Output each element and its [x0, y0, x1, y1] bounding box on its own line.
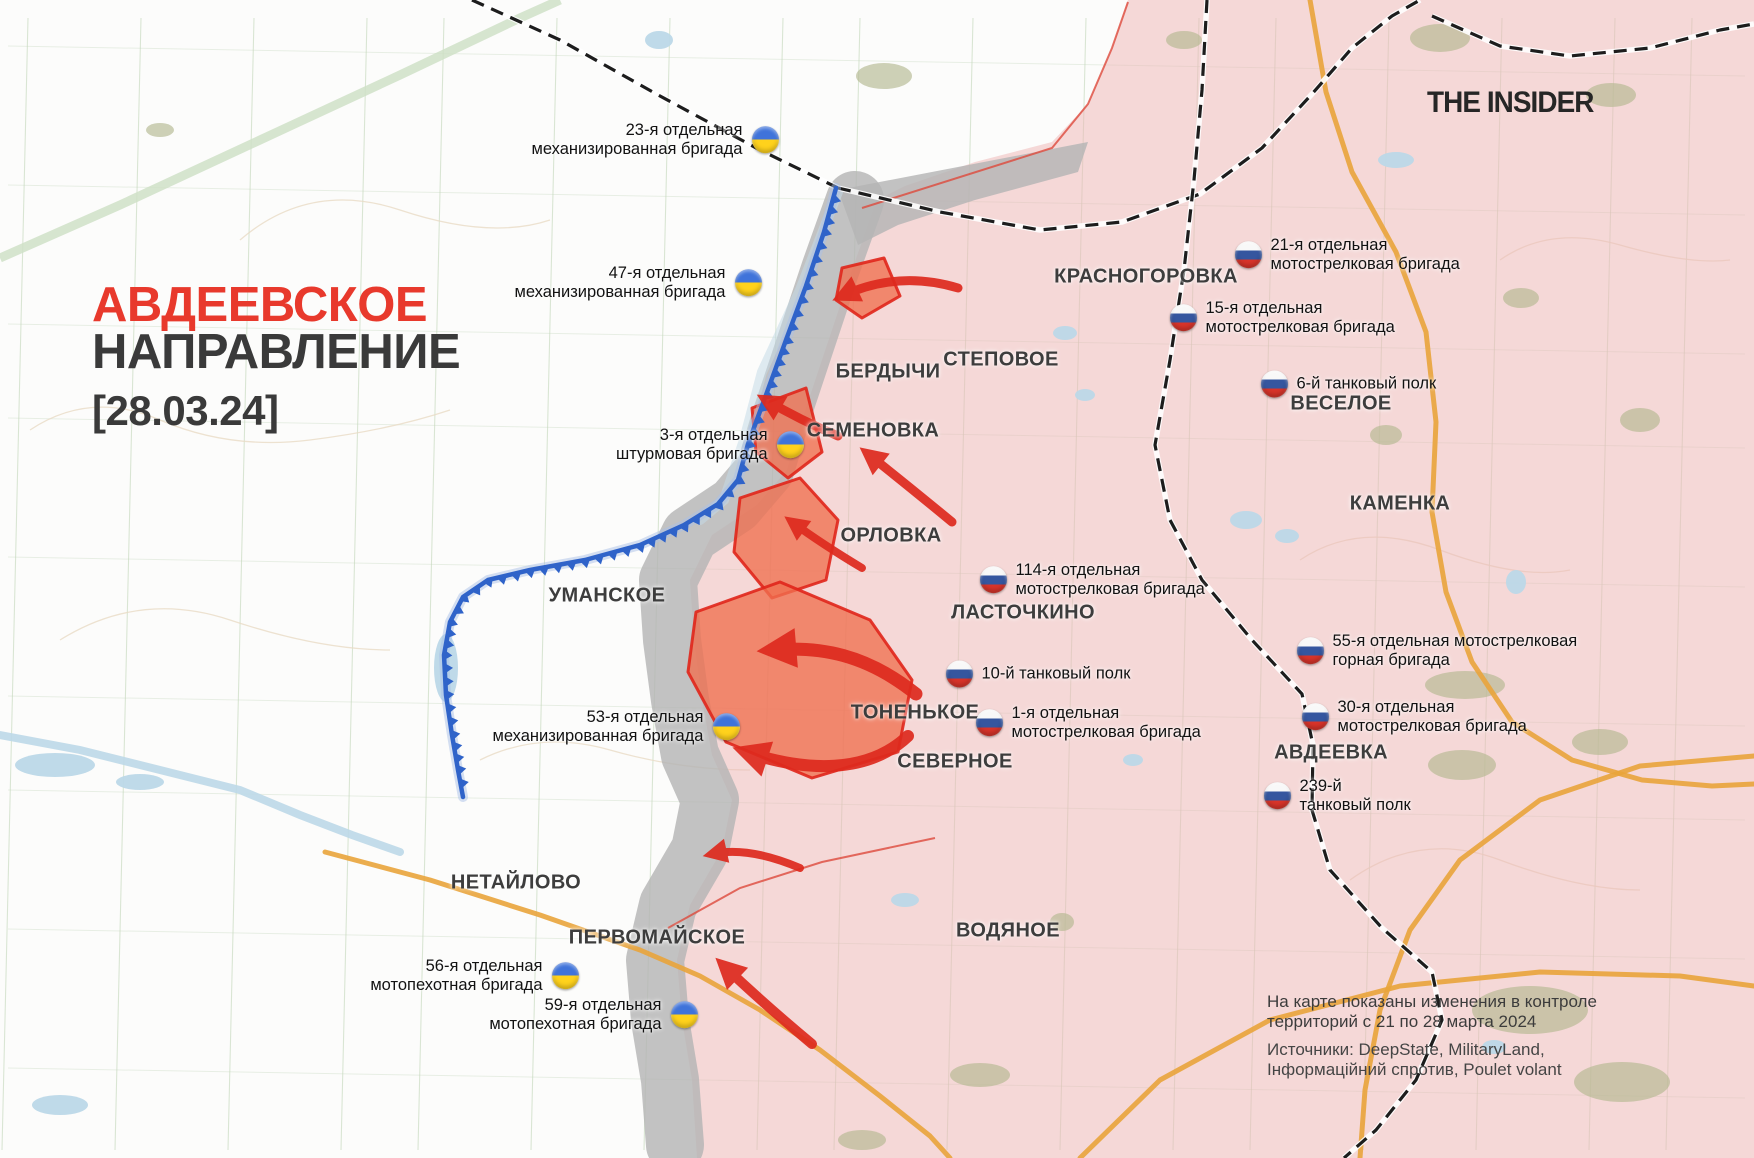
map-canvas: [0, 0, 1754, 1158]
avdiivka-direction-map: АВДЕЕВСКОЕ НАПРАВЛЕНИЕ [28.03.24] THE IN…: [0, 0, 1754, 1158]
